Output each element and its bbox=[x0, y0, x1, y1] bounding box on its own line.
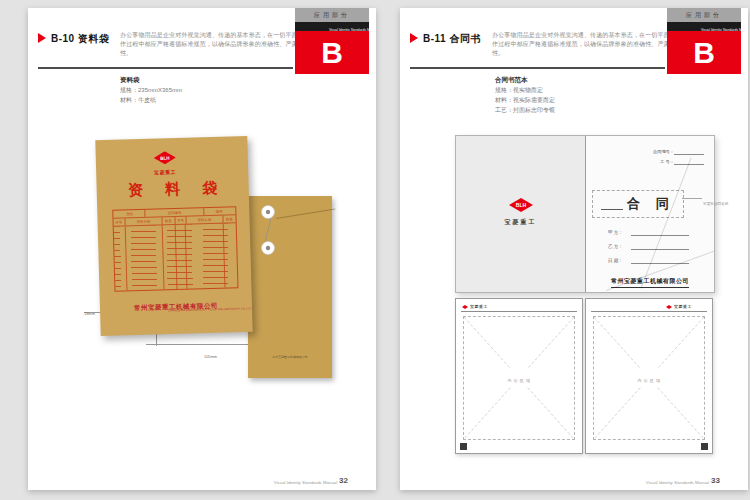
section-tab-label: 应用部分 bbox=[667, 8, 741, 22]
dimension-text: 18mm bbox=[84, 312, 95, 316]
table-cell: 编号 bbox=[204, 207, 235, 215]
logo-name: 宝菱重工 bbox=[117, 168, 214, 178]
manual-title-text: Visual Identity Standards Manual bbox=[329, 28, 369, 31]
section-letter-badge: B bbox=[295, 31, 369, 74]
table-cell-label: 资料名称 bbox=[198, 217, 212, 222]
contract-no-blank-line bbox=[674, 148, 704, 155]
party-a-field: 甲 方： bbox=[608, 228, 689, 236]
spec-line: 材料：牛皮纸 bbox=[120, 96, 182, 106]
table-cell: 类别 bbox=[113, 210, 145, 218]
page-number-text: 1 bbox=[462, 449, 464, 450]
chevron-right-icon bbox=[410, 33, 418, 43]
page-footer: Visual Identity Standards Manual 32 bbox=[235, 476, 348, 485]
inner-header-rule bbox=[461, 311, 577, 312]
placeholder-label: 内 容 区 域 bbox=[497, 369, 542, 387]
header-rule bbox=[38, 67, 293, 69]
content-placeholder-box: 内 容 区 域 bbox=[463, 316, 575, 440]
page-description: 办公事物用品是企业对外视觉沟通、传递的基本形态，在一切平面及立体制作过程中都应严… bbox=[120, 31, 322, 58]
page-number-badge: 1 bbox=[460, 443, 467, 450]
page-number-badge: 2 bbox=[701, 443, 708, 450]
table-cell-label: 编号 bbox=[216, 209, 223, 214]
annotation-leader-line bbox=[682, 198, 702, 199]
dimension-label-width: 105mm bbox=[204, 347, 227, 365]
logo-diamond-icon bbox=[462, 305, 468, 309]
inner-header-text: 宝菱重工 bbox=[674, 304, 692, 310]
envelope-back-footer: 常州宝菱重工机械有限公司 bbox=[248, 348, 332, 366]
manual-title-bar: Visual Identity Standards Manual bbox=[295, 22, 369, 31]
brand-logo: BLH 宝菱重工 bbox=[96, 148, 235, 181]
content-placeholder-box: 内 容 区 域 bbox=[593, 316, 705, 440]
footer-text: Visual Identity Standards Manual bbox=[274, 481, 337, 485]
table-cell-label: 类别 bbox=[125, 211, 132, 216]
logo-diamond-icon bbox=[666, 305, 672, 309]
footer-page-number: 33 bbox=[711, 476, 720, 485]
placeholder-text: 内 容 区 域 bbox=[508, 378, 531, 384]
contract-front-cover: 合同编号： 工 号： 合 同 甲 方： 乙 方： 日 期： bbox=[586, 136, 714, 292]
table-cell-label: 数量 bbox=[165, 218, 172, 223]
inner-page-left: 宝菱重工 内 容 区 域 1 bbox=[455, 298, 583, 454]
manual-title-text: Visual Identity Standards Manual bbox=[701, 28, 741, 31]
table-empty-rows bbox=[114, 223, 238, 290]
envelope-company-en: CHANGZHOU BAOLING HEAVY INDUSTRIAL MACHI… bbox=[100, 299, 252, 321]
contract-back-cover: BLH 宝菱重工 bbox=[456, 136, 586, 292]
table-cell: 资料名称 bbox=[125, 217, 162, 225]
spec-block: 合同书范本 规格：视实物而定 材料：视实际需要而定 工艺：封面标志印专银 bbox=[495, 75, 555, 115]
logo-name: 宝菱重工 bbox=[456, 218, 585, 227]
chevron-right-icon bbox=[38, 33, 46, 43]
logo-diamond-icon: BLH bbox=[509, 198, 533, 212]
logo-diamond-icon: BLH bbox=[154, 151, 176, 165]
section-tab-label: 应用部分 bbox=[295, 8, 369, 22]
envelope-back: 常州宝菱重工机械有限公司 bbox=[248, 196, 332, 378]
envelope-company-en-text: CHANGZHOU BAOLING HEAVY INDUSTRIAL MACHI… bbox=[168, 307, 251, 312]
cover-company-name: 常州宝菱重工机械有限公司 bbox=[586, 269, 714, 288]
contract-cover-spread: BLH 宝菱重工 合同编号： 工 号： 合 同 甲 方： bbox=[455, 135, 715, 293]
party-b-label: 乙 方： bbox=[608, 244, 623, 251]
contract-no-label: 合同编号： bbox=[653, 149, 674, 155]
table-cell-label: 资料名称 bbox=[136, 219, 150, 224]
table-cell-label: 序号 bbox=[177, 218, 184, 223]
envelope-table: 类别 合同编号 编号 序号 资料名称 数量 序号 资料名称 数量 bbox=[112, 206, 238, 291]
inner-page-right: 宝菱重工 内 容 区 域 2 bbox=[585, 298, 713, 454]
section-letter-badge: B bbox=[667, 31, 741, 74]
table-cell: 资料名称 bbox=[186, 216, 223, 224]
envelope-front: BLH 宝菱重工 资 料 袋 类别 合同编号 编号 序号 资料名称 数量 序号 … bbox=[95, 136, 252, 336]
spec-title: 资料袋 bbox=[120, 75, 182, 85]
date-label: 日 期： bbox=[608, 258, 623, 265]
dimension-text: 105mm bbox=[204, 355, 217, 359]
manual-page-left: B-10 资料袋 办公事物用品是企业对外视觉沟通、传递的基本形态，在一切平面及立… bbox=[28, 8, 376, 490]
page-footer: Visual Identity Standards Manual 33 bbox=[607, 476, 720, 485]
footer-page-number: 32 bbox=[339, 476, 348, 485]
string-button-icon bbox=[256, 204, 284, 264]
table-cell: 数量 bbox=[224, 215, 236, 222]
page-title: B-10 资料袋 bbox=[51, 32, 109, 46]
table-cell: 序号 bbox=[175, 217, 187, 224]
svg-text:BLH: BLH bbox=[515, 202, 526, 208]
table-cell-label: 数量 bbox=[226, 216, 233, 221]
contract-title: 合 同 bbox=[627, 195, 675, 213]
placeholder-label: 内 容 区 域 bbox=[627, 369, 672, 387]
manual-title-bar: Visual Identity Standards Manual bbox=[667, 22, 741, 31]
svg-text:BLH: BLH bbox=[160, 156, 170, 161]
section-tab: 应用部分 Visual Identity Standards Manual B bbox=[667, 8, 741, 74]
annotation: 可更换合同名称 bbox=[703, 194, 750, 212]
manual-page-right: B-11 合同书 办公事物用品是企业对外视觉沟通、传递的基本形态，在一切平面及立… bbox=[400, 8, 748, 490]
placeholder-text: 内 容 区 域 bbox=[638, 378, 661, 384]
spec-title: 合同书范本 bbox=[495, 75, 555, 85]
table-cell: 数量 bbox=[162, 217, 175, 224]
contract-no-field: 合同编号： bbox=[639, 148, 704, 155]
party-b-field: 乙 方： bbox=[608, 242, 689, 250]
footer-text: Visual Identity Standards Manual bbox=[646, 481, 709, 485]
cover-company-text: 常州宝菱重工机械有限公司 bbox=[611, 277, 689, 288]
spec-line: 规格：235mmX365mm bbox=[120, 86, 182, 96]
date-field: 日 期： bbox=[608, 256, 689, 264]
page-title: B-11 合同书 bbox=[423, 32, 481, 46]
party-b-blank-line bbox=[631, 242, 689, 250]
spec-line: 材料：视实际需要而定 bbox=[495, 96, 555, 106]
header-rule bbox=[410, 67, 665, 69]
page-number-text: 2 bbox=[703, 449, 705, 450]
spec-block: 资料袋 规格：235mmX365mm 材料：牛皮纸 bbox=[120, 75, 182, 106]
table-cell: 序号 bbox=[113, 218, 125, 225]
contract-title-blank-line bbox=[601, 198, 623, 210]
job-no-label: 工 号： bbox=[660, 159, 674, 165]
table-cell-label: 序号 bbox=[115, 219, 122, 224]
annotation-text: 可更换合同名称 bbox=[703, 201, 728, 206]
inner-header-text: 宝菱重工 bbox=[470, 304, 488, 310]
envelope-back-company: 常州宝菱重工机械有限公司 bbox=[272, 355, 307, 359]
envelope-title: 资 料 袋 bbox=[96, 178, 248, 201]
table-cell-label: 合同编号 bbox=[167, 210, 181, 215]
spec-line: 规格：视实物而定 bbox=[495, 86, 555, 96]
job-no-field: 工 号： bbox=[651, 158, 704, 165]
brand-logo: BLH 宝菱重工 bbox=[456, 198, 585, 227]
page-description: 办公事物用品是企业对外视觉沟通、传递的基本形态，在一切平面及立体制作过程中都应严… bbox=[492, 31, 694, 58]
party-a-label: 甲 方： bbox=[608, 230, 623, 237]
spec-line: 工艺：封面标志印专银 bbox=[495, 106, 555, 116]
inner-header-rule bbox=[591, 311, 707, 312]
envelope-flap-line bbox=[276, 209, 335, 219]
section-tab: 应用部分 Visual Identity Standards Manual B bbox=[295, 8, 369, 74]
